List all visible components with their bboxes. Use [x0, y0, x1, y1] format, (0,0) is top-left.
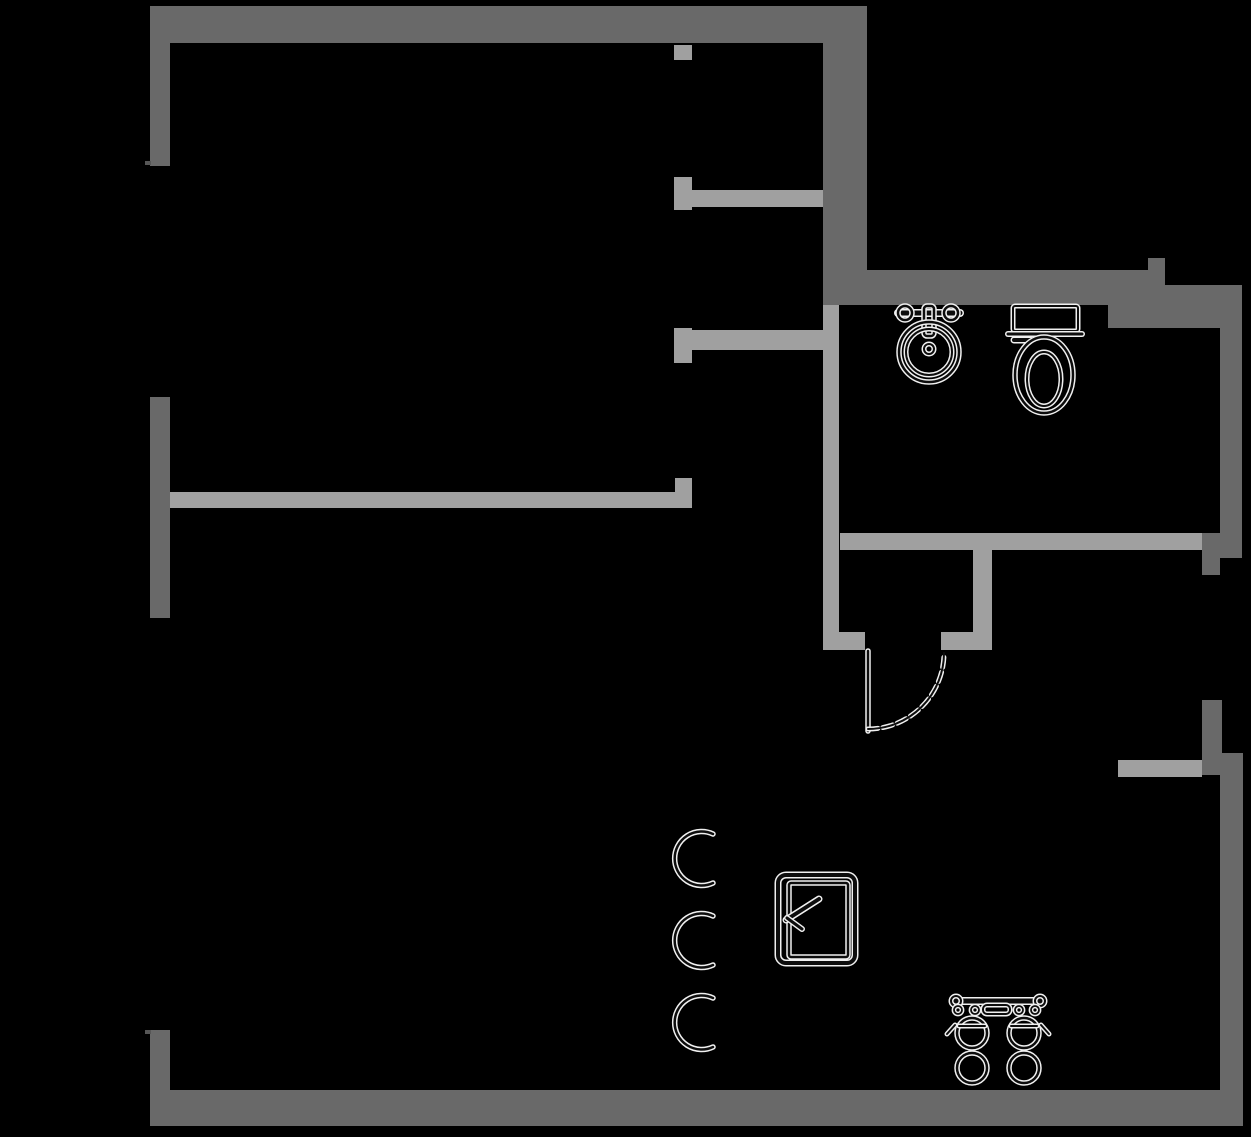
wall-bath-top-left — [867, 270, 1148, 305]
double-basin-fixture-core — [1009, 1018, 1039, 1048]
toilet-fixture-core — [1027, 352, 1061, 406]
stool-arc-bottom — [675, 996, 713, 1050]
wall-door-jamb-column — [973, 550, 992, 648]
wall-divider-thick — [823, 43, 867, 305]
toilet-fixture — [1008, 306, 1082, 413]
stool-arc-top-halo — [675, 832, 713, 886]
double-basin-fixture — [947, 996, 1049, 1083]
stool-arc-bottom-halo — [675, 996, 713, 1050]
jamb-top — [674, 45, 692, 60]
wall-bottom — [150, 1090, 1243, 1126]
wall-left-middle — [150, 397, 170, 618]
wall-end-tick-upper — [145, 161, 151, 165]
stool-arc-middle — [675, 914, 713, 968]
toilet-fixture-halo — [1013, 306, 1078, 331]
toilet-fixture-core — [1013, 306, 1078, 331]
wall-hall-upper — [692, 190, 823, 207]
wall-hall-lower — [692, 330, 823, 350]
stool-arc-middle-halo — [675, 914, 713, 968]
stool-arc-top — [675, 832, 713, 886]
bathroom-sink-fixture — [898, 306, 960, 382]
door-swing-halo — [868, 653, 944, 729]
wall-end-tick-lower — [145, 1030, 151, 1034]
dishwasher-fixture-core — [789, 883, 848, 957]
floor-plan-canvas — [0, 0, 1251, 1137]
double-basin-fixture-core — [957, 1053, 987, 1083]
wall-mid-horizontal — [170, 492, 692, 508]
jamb-upper — [674, 177, 692, 210]
wall-bath-top-right — [1165, 285, 1242, 328]
double-basin-fixture-halo — [983, 1005, 1010, 1014]
wall-bath-top-bump — [1148, 258, 1165, 305]
wall-mid-endcap — [675, 478, 692, 508]
jamb-lower — [674, 328, 692, 363]
wall-right-upper — [1220, 328, 1242, 558]
wall-right-light — [1118, 760, 1202, 777]
toilet-fixture-core — [1015, 337, 1073, 413]
double-basin-fixture-core — [1009, 1053, 1039, 1083]
door-swing — [868, 651, 944, 731]
wall-right-corner-tail — [1202, 558, 1220, 575]
stub-door-left — [823, 632, 865, 650]
dishwasher-fixture — [778, 875, 855, 963]
double-basin-fixture-core — [957, 1018, 987, 1048]
wall-right-corner-block — [1202, 533, 1242, 558]
wall-top — [152, 6, 867, 43]
wall-right-lower — [1220, 753, 1243, 1126]
floor-plan — [0, 0, 1251, 1137]
wall-closet-top — [840, 533, 1202, 550]
dishwasher-fixture-halo — [789, 883, 848, 957]
wall-bath-top-under — [1108, 305, 1165, 328]
wall-left-upper — [150, 6, 170, 166]
wall-closet-left — [823, 305, 839, 650]
wall-right-mid-stub — [1202, 700, 1222, 775]
